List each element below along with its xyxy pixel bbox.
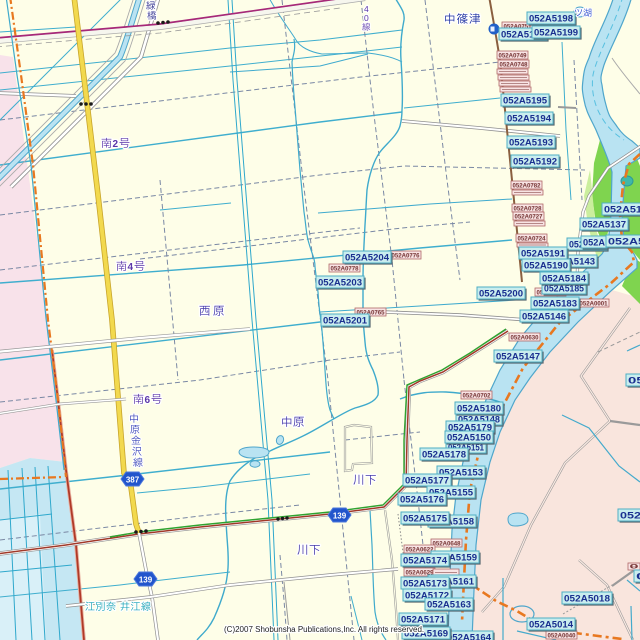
svg-text:052A0748: 052A0748	[500, 62, 528, 69]
svg-text:052A0648: 052A0648	[433, 541, 461, 548]
svg-text:052A513: 052A513	[604, 205, 640, 216]
svg-text:052A5177: 052A5177	[405, 476, 449, 487]
svg-text:052A5184: 052A5184	[542, 274, 587, 285]
svg-text:052A0782: 052A0782	[513, 183, 541, 190]
svg-text:052A0724: 052A0724	[518, 236, 546, 243]
svg-text:052A0776: 052A0776	[392, 253, 420, 260]
svg-text:052A5201: 052A5201	[323, 316, 368, 327]
svg-text:052A50: 052A50	[620, 511, 640, 522]
svg-text:052A5194: 052A5194	[507, 114, 552, 125]
svg-text:052A0630: 052A0630	[511, 335, 539, 342]
svg-text:052A5193: 052A5193	[509, 138, 553, 149]
svg-text:0: 0	[630, 564, 640, 571]
svg-text:052A5014: 052A5014	[529, 620, 574, 631]
svg-text:052A5191: 052A5191	[521, 249, 566, 260]
svg-text:052A5150: 052A5150	[447, 433, 491, 444]
svg-text:2: 2	[113, 139, 119, 150]
svg-text:052A0040: 052A0040	[548, 633, 576, 640]
svg-text:052A5: 052A5	[628, 376, 640, 387]
svg-text:052A: 052A	[583, 238, 605, 249]
svg-text:052A5173: 052A5173	[403, 579, 447, 590]
svg-text:052A5200: 052A5200	[479, 289, 523, 300]
svg-text:052A0727: 052A0727	[515, 214, 543, 221]
svg-text:052A5174: 052A5174	[403, 556, 448, 567]
svg-text:052A: 052A	[636, 572, 640, 583]
svg-text:052A51: 052A51	[608, 237, 640, 248]
svg-text:052A5199: 052A5199	[534, 28, 578, 39]
svg-text:052A5175: 052A5175	[403, 514, 448, 525]
svg-text:387: 387	[126, 476, 140, 485]
svg-text:139: 139	[139, 576, 153, 585]
svg-text:4: 4	[128, 262, 134, 273]
svg-text:052A5171: 052A5171	[401, 615, 446, 626]
svg-text:052A5163: 052A5163	[427, 600, 471, 611]
svg-text:052A5146: 052A5146	[522, 312, 566, 323]
svg-text:139: 139	[333, 512, 347, 521]
svg-text:052A0702: 052A0702	[463, 393, 491, 400]
svg-text:052A5018: 052A5018	[564, 594, 611, 605]
svg-text:052A5198: 052A5198	[529, 14, 574, 25]
svg-text:052A5180: 052A5180	[457, 404, 501, 415]
svg-text:052A0749: 052A0749	[499, 53, 527, 60]
svg-text:052A5190: 052A5190	[524, 261, 568, 272]
svg-text:052A5195: 052A5195	[503, 96, 548, 107]
svg-text:052A5147: 052A5147	[496, 352, 540, 363]
svg-text:052A5204: 052A5204	[345, 253, 390, 264]
svg-text:(C)2007 Shobunsha Publications: (C)2007 Shobunsha Publications,Inc. All …	[224, 625, 424, 634]
svg-text:0: 0	[364, 13, 369, 23]
svg-text:052A5178: 052A5178	[422, 450, 467, 461]
svg-text:052A5203: 052A5203	[318, 278, 362, 289]
svg-text:052A5183: 052A5183	[533, 299, 577, 310]
svg-text:052A0728: 052A0728	[514, 206, 542, 213]
svg-text:6: 6	[145, 395, 151, 406]
svg-text:052A5164: 052A5164	[447, 633, 492, 640]
svg-text:052A5137: 052A5137	[582, 220, 626, 231]
svg-text:052A0001: 052A0001	[580, 301, 608, 308]
svg-text:052A0622: 052A0622	[406, 547, 434, 554]
svg-text:052A0778: 052A0778	[331, 266, 359, 273]
svg-text:052A5192: 052A5192	[513, 157, 557, 168]
svg-text:052A5176: 052A5176	[400, 495, 444, 506]
